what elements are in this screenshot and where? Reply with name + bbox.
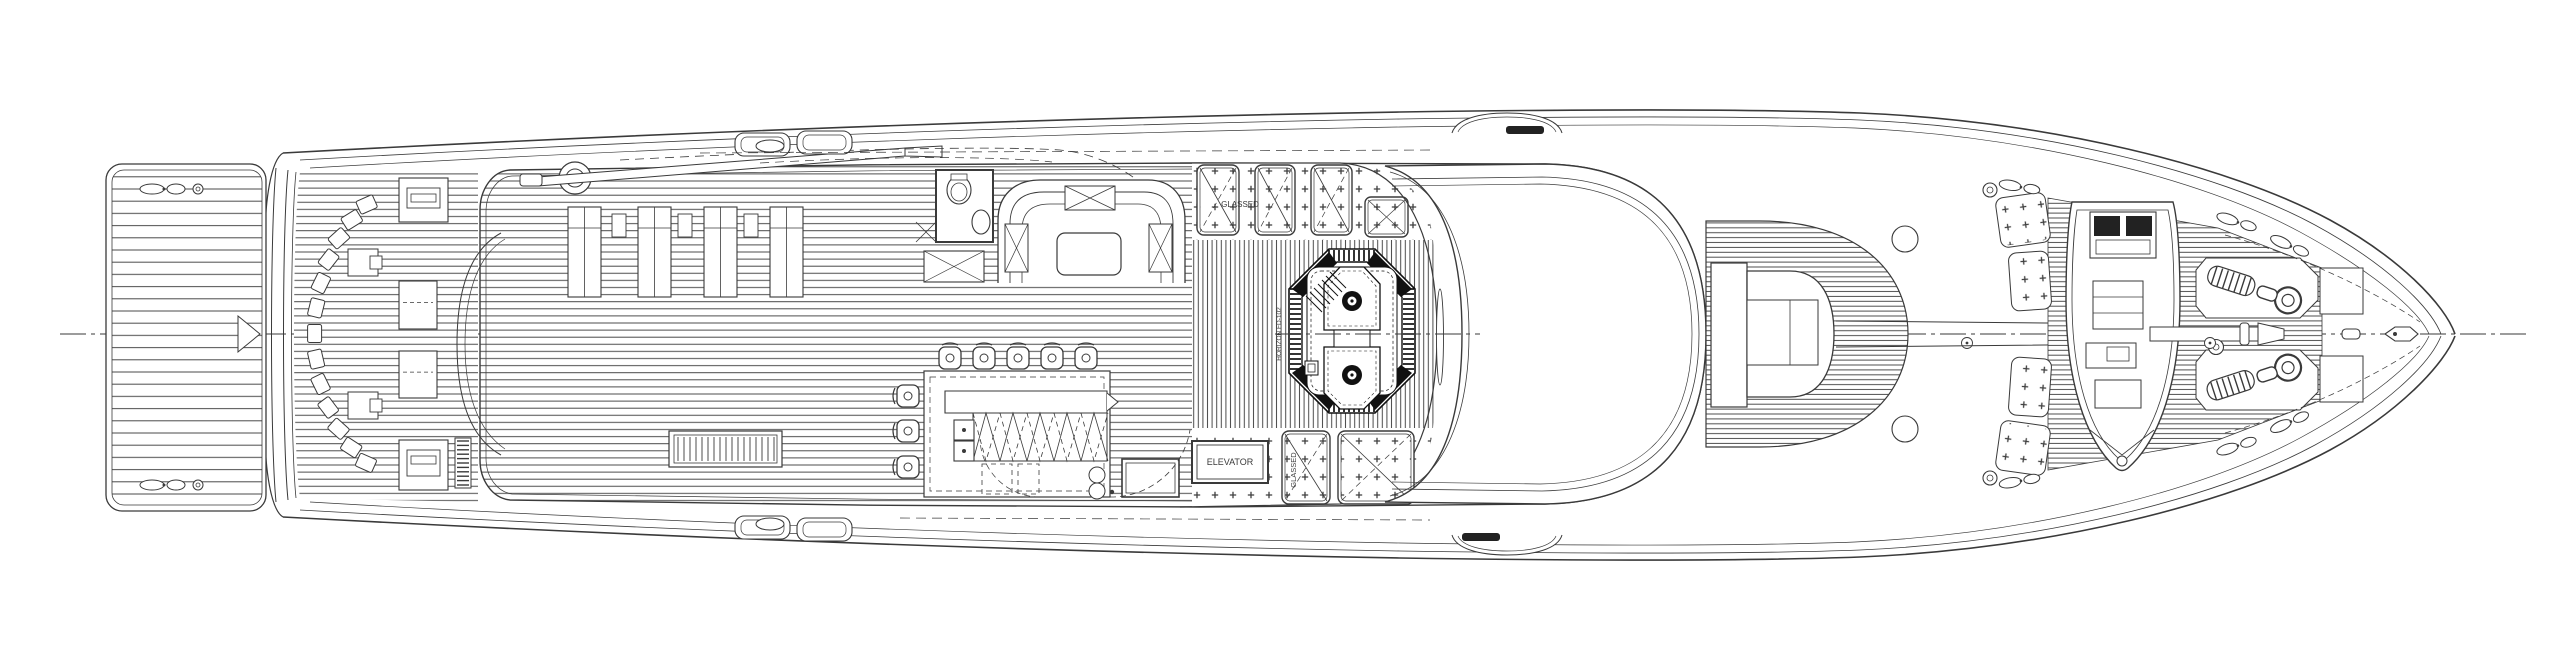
svg-text:ELEVATOR: ELEVATOR — [1207, 457, 1254, 467]
svg-text:GLASSED: GLASSED — [1221, 200, 1259, 209]
svg-text:GLASSED: GLASSED — [1289, 452, 1298, 488]
